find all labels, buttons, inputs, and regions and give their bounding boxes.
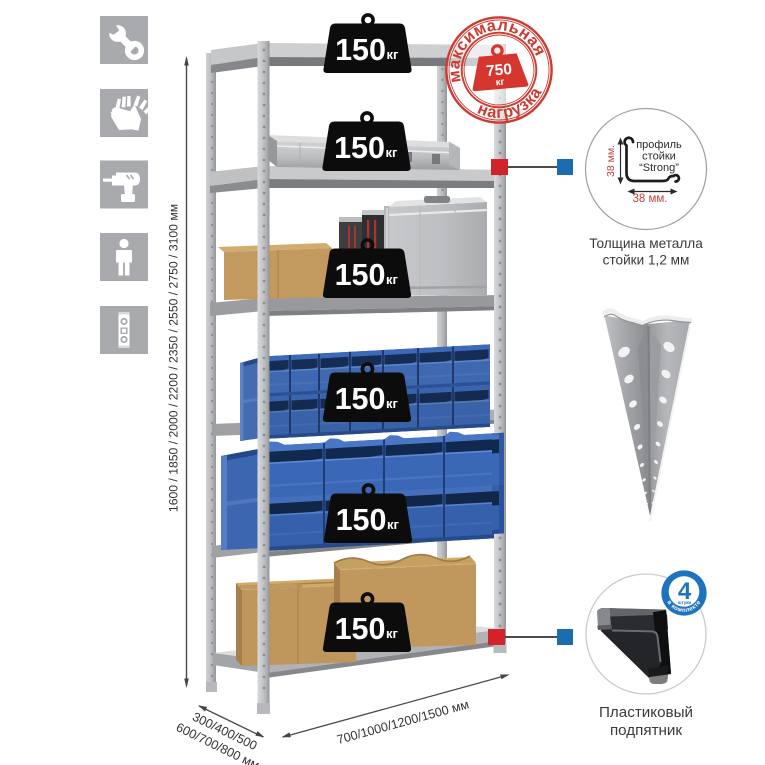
svg-text:профиль: профиль [636,139,682,151]
svg-text:штуки: штуки [678,600,692,605]
svg-text:подпятник: подпятник [610,722,682,739]
svg-text:Пластиковый: Пластиковый [599,704,693,721]
svg-text:“Strong”: “Strong” [639,162,679,174]
svg-text:кг: кг [495,77,505,89]
svg-text:стойки 1,2 мм: стойки 1,2 мм [603,253,690,268]
svg-text:Толщина металла: Толщина металла [589,236,703,251]
svg-text:1600 / 1850 / 2000 / 2200 / 23: 1600 / 1850 / 2000 / 2200 / 2350 / 2550 … [167,204,181,512]
svg-text:38 мм.: 38 мм. [605,145,617,177]
svg-text:38 мм.: 38 мм. [633,193,668,205]
svg-text:стойки: стойки [642,151,676,163]
